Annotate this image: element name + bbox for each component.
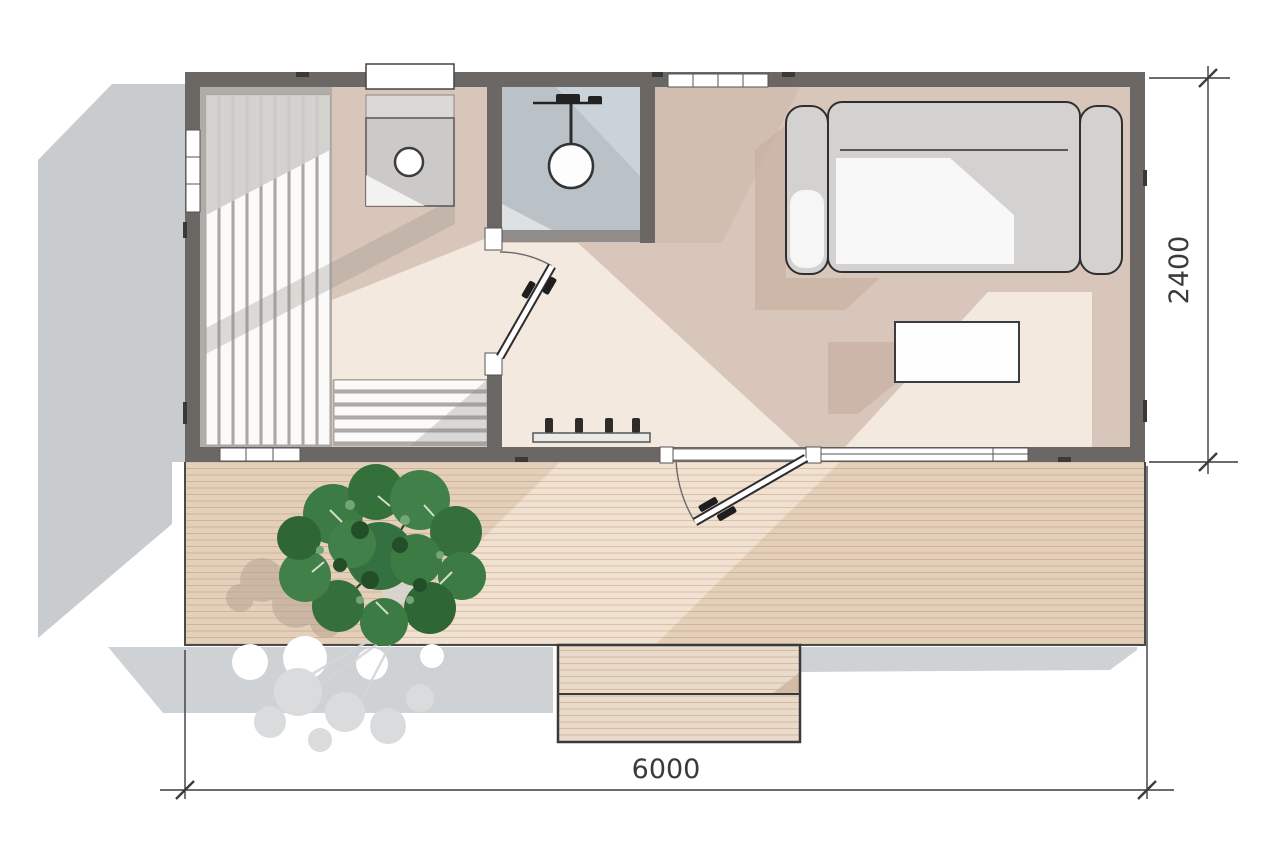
wall-partition-lower xyxy=(487,375,502,447)
wall-bathroom-right xyxy=(640,87,655,243)
kitchen-sink xyxy=(395,148,423,176)
coffee-table xyxy=(895,322,1019,382)
sauna-bench-slats xyxy=(333,379,488,446)
door-jamb xyxy=(660,447,673,463)
sofa xyxy=(786,102,1122,274)
door-jamb xyxy=(806,447,821,463)
floor-plan-canvas: 6000 2400 xyxy=(0,0,1280,853)
deck-steps xyxy=(558,645,800,742)
door-threshold xyxy=(673,449,806,460)
dimension-width-label: 6000 xyxy=(632,754,701,785)
top-wall-window xyxy=(668,74,768,87)
left-wall-window xyxy=(186,130,200,212)
living-room-glass-wall xyxy=(821,448,1028,461)
dimension-height-label: 2400 xyxy=(1164,236,1195,305)
sauna-floor-slats xyxy=(200,87,332,447)
bathroom xyxy=(502,87,655,242)
kitchen-unit xyxy=(366,95,454,206)
kitchen-upper-cabinet xyxy=(366,95,454,118)
sauna-window xyxy=(220,448,300,461)
door-jamb xyxy=(485,228,502,250)
wall-top xyxy=(185,72,1145,87)
bathroom-partition-wall xyxy=(502,230,655,242)
kitchen-window xyxy=(366,64,454,89)
sofa-armrest-right xyxy=(1080,106,1122,274)
wall-right xyxy=(1130,72,1145,462)
wall-partition-upper xyxy=(487,87,502,228)
floor-plan-drawing: 6000 2400 xyxy=(0,0,1280,853)
